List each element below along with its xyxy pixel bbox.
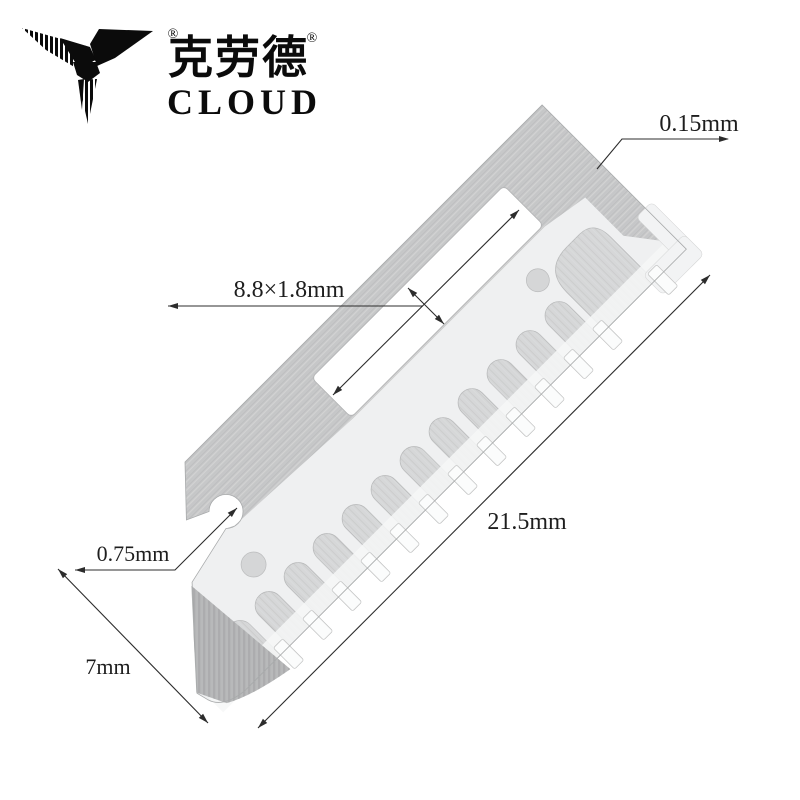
leader-thickness [597, 139, 728, 169]
bird-logo-icon [22, 28, 153, 124]
blade-illustration [75, 99, 706, 730]
label-slot: 8.8×1.8mm [234, 277, 345, 303]
brand-logo: ® 克劳德 ® CLOUD [22, 27, 322, 124]
label-notch: 0.75mm [97, 541, 170, 566]
label-length: 21.5mm [487, 509, 567, 535]
product-page: 0.15mm 8.8×1.8mm 21.5mm 0.75mm 7mm [0, 0, 800, 800]
label-thickness: 0.15mm [659, 111, 739, 137]
arrowhead [75, 567, 85, 573]
width-line [58, 569, 208, 723]
brand-name-zh: 克劳德 [168, 33, 309, 83]
brand-name-en: CLOUD [167, 82, 322, 122]
arrowhead [168, 303, 178, 309]
registered-mark: ® [307, 31, 318, 46]
label-width: 7mm [85, 654, 130, 679]
product-diagram: 0.15mm 8.8×1.8mm 21.5mm 0.75mm 7mm [0, 0, 800, 800]
